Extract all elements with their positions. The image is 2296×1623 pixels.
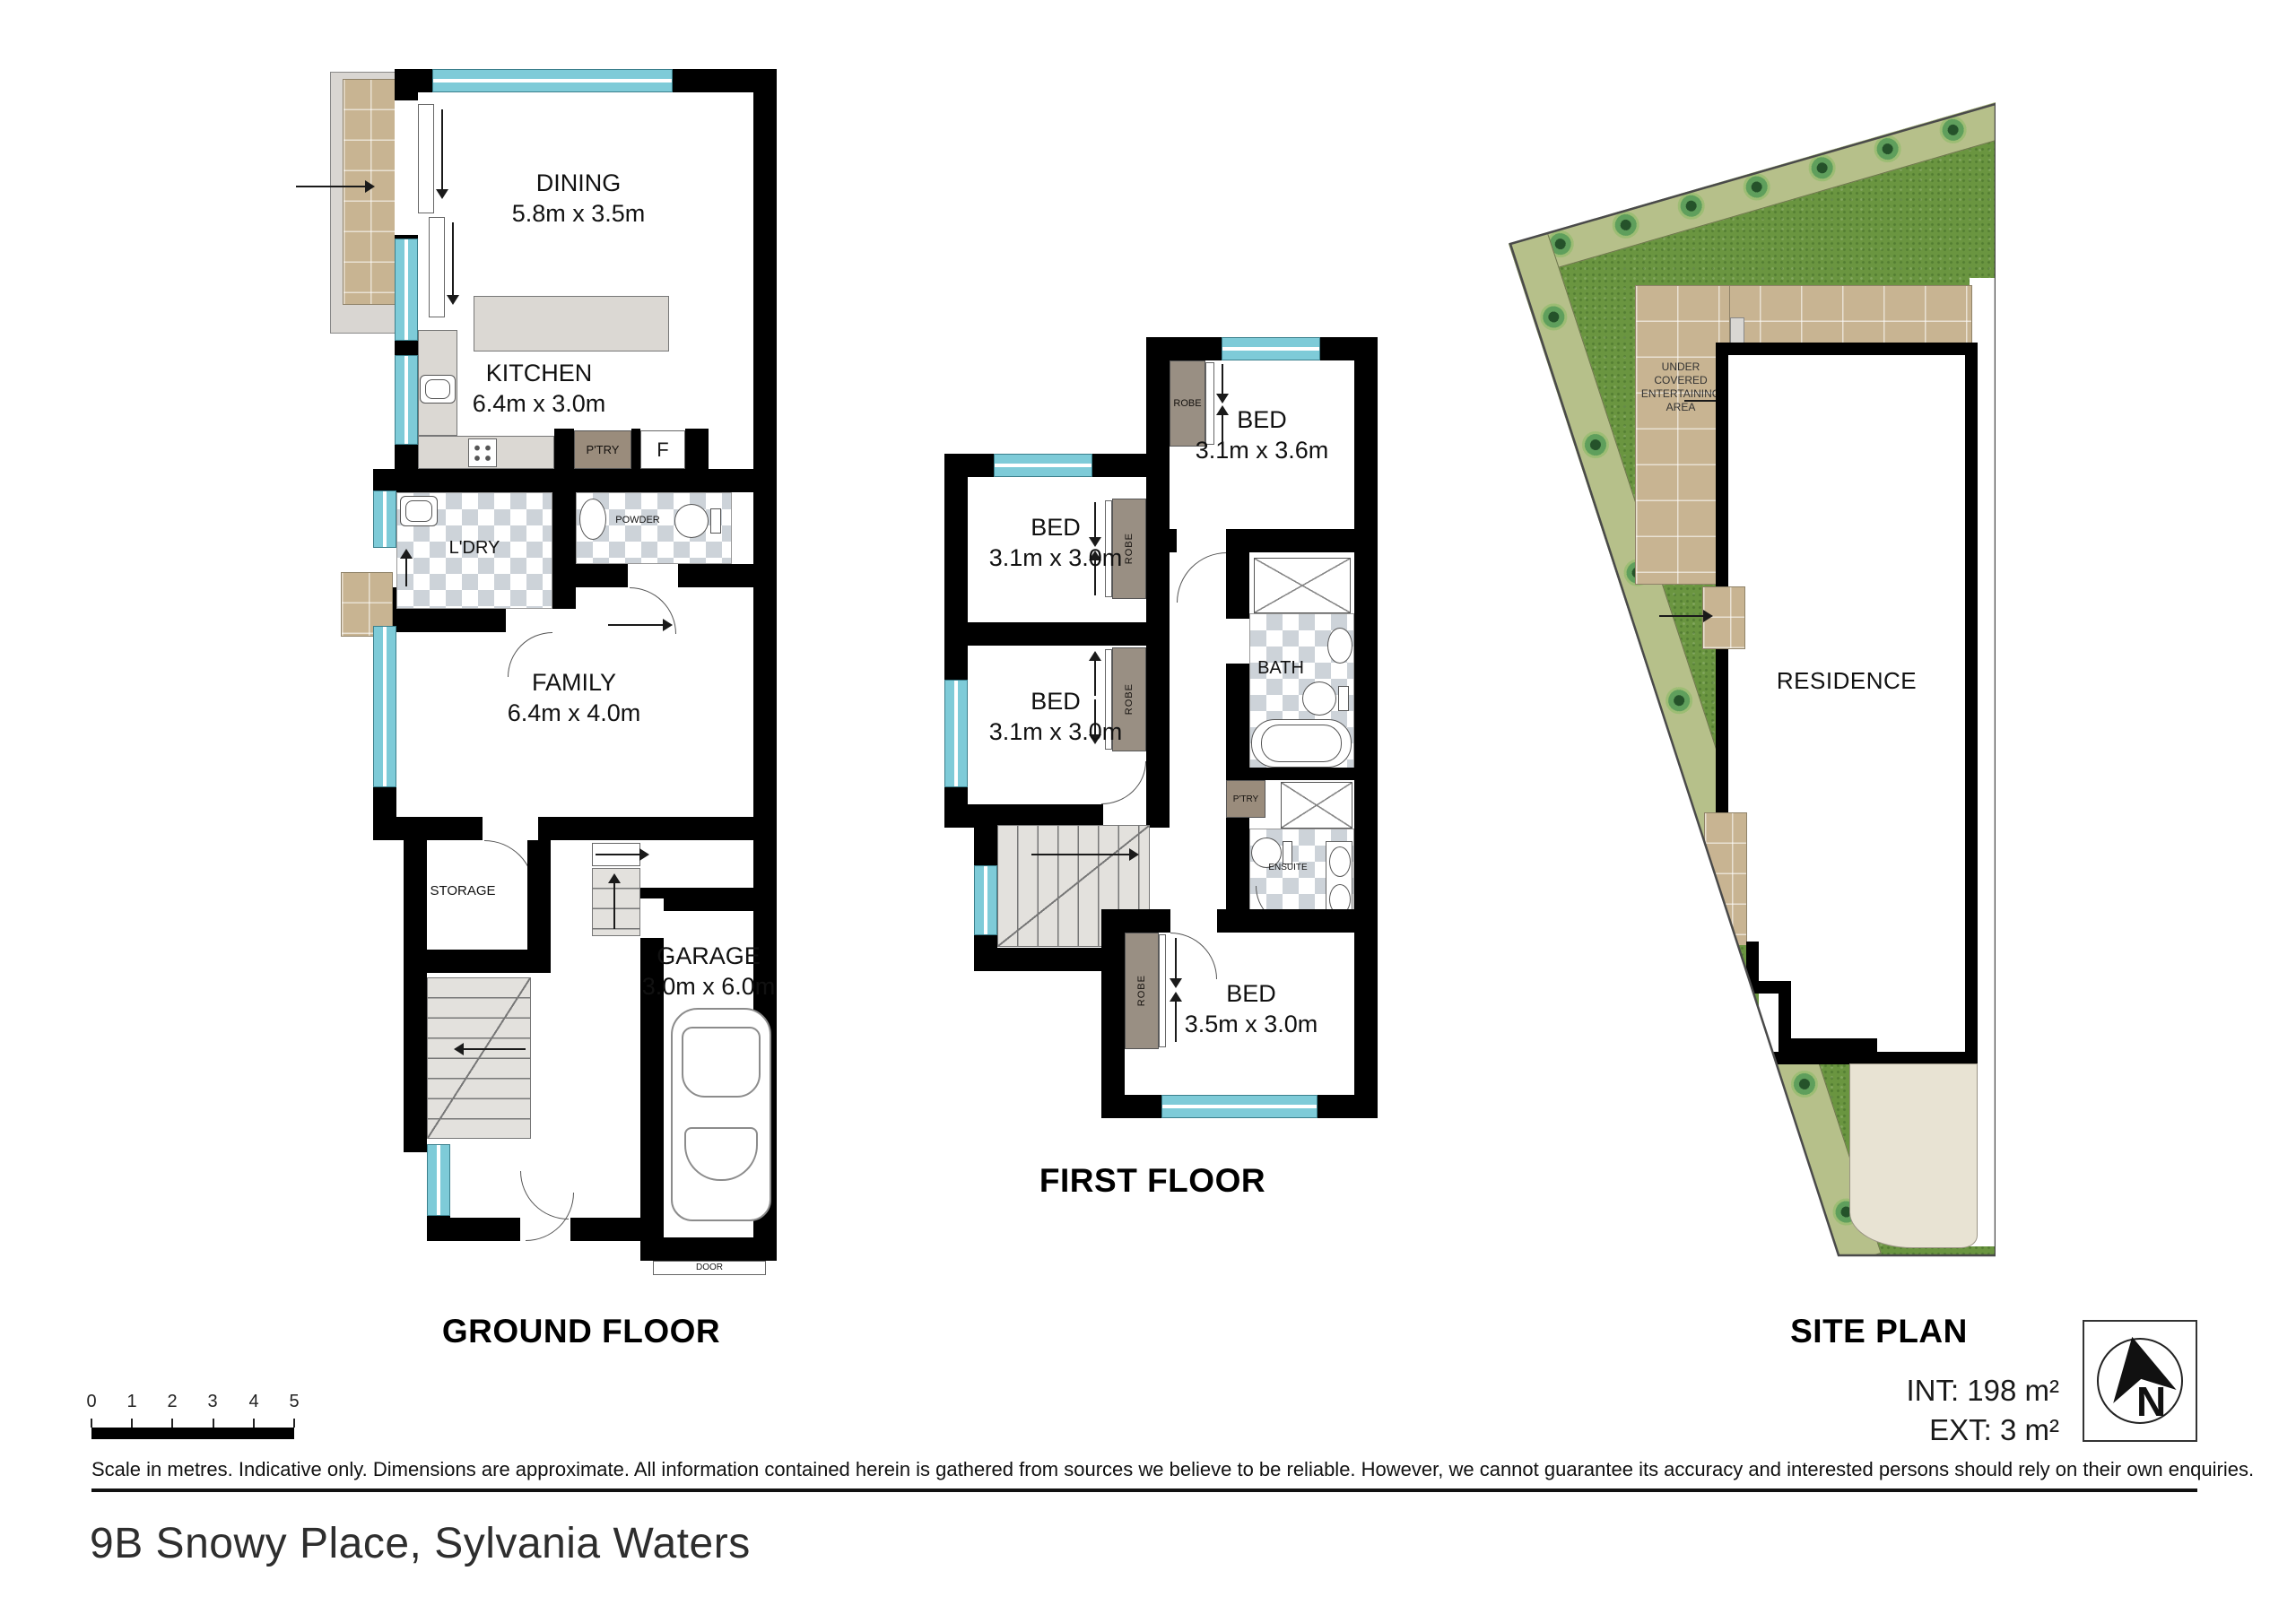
room-dims: 6.4m x 3.0m — [404, 389, 674, 420]
wall — [554, 429, 574, 469]
scale-tick — [91, 1419, 92, 1428]
window — [994, 454, 1092, 477]
door-opening — [640, 898, 664, 938]
fridge-label: F — [657, 438, 668, 462]
pantry-label: P'TRY — [1233, 794, 1258, 804]
wall — [396, 609, 506, 632]
wall — [576, 564, 628, 587]
room-dims: 5.8m x 3.5m — [439, 199, 717, 230]
side-entry-arrow-icon — [400, 549, 413, 586]
wall — [1226, 768, 1354, 780]
landing-arrow-icon — [596, 848, 649, 861]
wall — [685, 429, 709, 469]
wall — [678, 564, 753, 587]
bed2-label: BED 3.1m x 3.0m — [957, 513, 1154, 574]
garage-door-label: DOOR — [696, 1263, 723, 1272]
scale-tick-label: 4 — [240, 1392, 267, 1412]
laundry-sink-icon — [400, 496, 438, 526]
car-icon — [671, 1008, 771, 1221]
north-compass-icon: N — [2083, 1320, 2197, 1442]
room-name: BED — [957, 513, 1154, 543]
wall — [552, 492, 576, 609]
family-label: FAMILY 6.4m x 4.0m — [404, 668, 744, 729]
stair-arrow-icon — [1031, 847, 1139, 862]
site-plan-title: SITE PLAN — [1744, 1313, 2013, 1350]
entry-step — [429, 217, 445, 317]
wall — [570, 1218, 640, 1241]
room-dims: 3.5m x 3.0m — [1152, 1010, 1350, 1040]
room-name: BED — [1163, 405, 1361, 436]
window — [1222, 337, 1320, 360]
window — [974, 865, 997, 935]
ensuite-basin-icon — [1329, 846, 1351, 877]
scale-tick-label: 3 — [199, 1392, 226, 1412]
laundry-label: L'DRY — [396, 538, 552, 559]
door-arc — [526, 1193, 574, 1241]
window — [427, 1144, 450, 1216]
garage-door: DOOR — [653, 1261, 766, 1275]
stair-arrow-icon — [454, 1042, 526, 1056]
bathtub-icon — [1251, 719, 1352, 768]
scale-tick — [293, 1419, 295, 1428]
room-dims: 3.1m x 3.0m — [957, 717, 1154, 748]
dining-label: DINING 5.8m x 3.5m — [439, 169, 717, 230]
door-opening — [1170, 909, 1217, 933]
room-name: KITCHEN — [404, 359, 674, 389]
staircase — [427, 977, 531, 1139]
wall — [404, 950, 551, 973]
window — [1161, 1095, 1318, 1118]
floorplan-page: DINING 5.8m x 3.5m KITCHEN 6.4m x 3.0m P… — [0, 0, 2296, 1623]
robe-label: ROBE — [1136, 975, 1147, 1006]
bath-basin-icon — [1327, 628, 1352, 664]
room-name: GARAGE — [619, 942, 798, 972]
bed4-label: BED 3.5m x 3.0m — [1152, 979, 1350, 1040]
disclaimer-text: Scale in metres. Indicative only. Dimens… — [91, 1458, 2244, 1481]
bed1-label: BED 3.1m x 3.6m — [1163, 405, 1361, 466]
entry-arrow-icon — [296, 179, 375, 194]
linen-pantry: P'TRY — [1226, 780, 1265, 818]
scale-tick — [213, 1419, 214, 1428]
cooktop-icon — [468, 438, 497, 467]
storage-label: STORAGE — [400, 883, 526, 898]
fridge-space: F — [640, 430, 685, 469]
first-floor-title: FIRST FLOOR — [964, 1162, 1341, 1200]
window — [373, 490, 396, 548]
wall — [640, 1237, 777, 1261]
door-arc — [1177, 552, 1227, 603]
wall — [974, 948, 1107, 971]
scale-tick — [253, 1419, 255, 1428]
ground-floor-title: GROUND FLOOR — [357, 1313, 805, 1350]
shower-icon — [1281, 782, 1352, 829]
wall — [974, 804, 997, 865]
ext-area: EXT: 3 m² — [1790, 1413, 2059, 1447]
robe-arrow-icon — [1216, 364, 1229, 404]
step-arrow-icon — [447, 222, 459, 305]
pantry-closet: P'TRY — [574, 430, 631, 469]
bath-toilet-icon — [1302, 681, 1349, 716]
wall — [404, 973, 427, 1152]
scale-tick-label: 5 — [281, 1392, 308, 1412]
scale-tick-label: 1 — [118, 1392, 145, 1412]
garage-label: GARAGE 3.0m x 6.0m — [619, 942, 798, 1002]
kitchen-label: KITCHEN 6.4m x 3.0m — [404, 359, 674, 420]
room-name: BED — [957, 687, 1154, 717]
compass-n-label: N — [2136, 1377, 2166, 1426]
scale-tick-label: 0 — [78, 1392, 105, 1412]
powder-toilet-icon — [674, 504, 721, 538]
wall — [631, 429, 640, 469]
divider-rule — [91, 1488, 2197, 1492]
room-dims: 6.4m x 4.0m — [404, 699, 744, 729]
scale-tick — [171, 1419, 173, 1428]
window — [395, 239, 418, 341]
pantry-label: P'TRY — [587, 443, 620, 456]
shower-icon — [1254, 558, 1351, 613]
room-name: DINING — [439, 169, 717, 199]
wall — [1226, 529, 1249, 619]
door-arrow-icon — [608, 619, 673, 631]
scale-tick-label: 2 — [159, 1392, 186, 1412]
bed3-label: BED 3.1m x 3.0m — [957, 687, 1154, 748]
room-dims: 3.1m x 3.0m — [957, 543, 1154, 574]
wall — [1226, 664, 1249, 780]
window — [432, 69, 673, 92]
site-plan: UNDER COVERED ENTERTAINING AREA RESIDENC… — [1509, 102, 1996, 1261]
address-title: 9B Snowy Place, Sylvania Waters — [90, 1519, 751, 1568]
bath-label: BATH — [1231, 658, 1330, 679]
door-opening — [483, 817, 538, 840]
garage-step-arrow-icon — [608, 873, 621, 929]
entry-step — [418, 104, 434, 213]
powder-label: POWDER — [597, 515, 678, 525]
int-area: INT: 198 m² — [1790, 1374, 2059, 1408]
site-boundary — [1509, 102, 1996, 1261]
room-name: BED — [1152, 979, 1350, 1010]
scale-tick — [131, 1419, 133, 1428]
ensuite-label: ENSUITE — [1247, 863, 1329, 872]
room-dims: 3.1m x 3.6m — [1163, 436, 1361, 466]
door-opening — [1177, 529, 1227, 552]
room-name: FAMILY — [404, 668, 744, 699]
wall — [427, 1218, 520, 1241]
room-dims: 3.0m x 6.0m — [619, 972, 798, 1002]
entry-opening — [395, 100, 418, 235]
scale-bar-line — [91, 1428, 294, 1439]
island-bench — [474, 296, 669, 352]
window — [373, 626, 396, 787]
